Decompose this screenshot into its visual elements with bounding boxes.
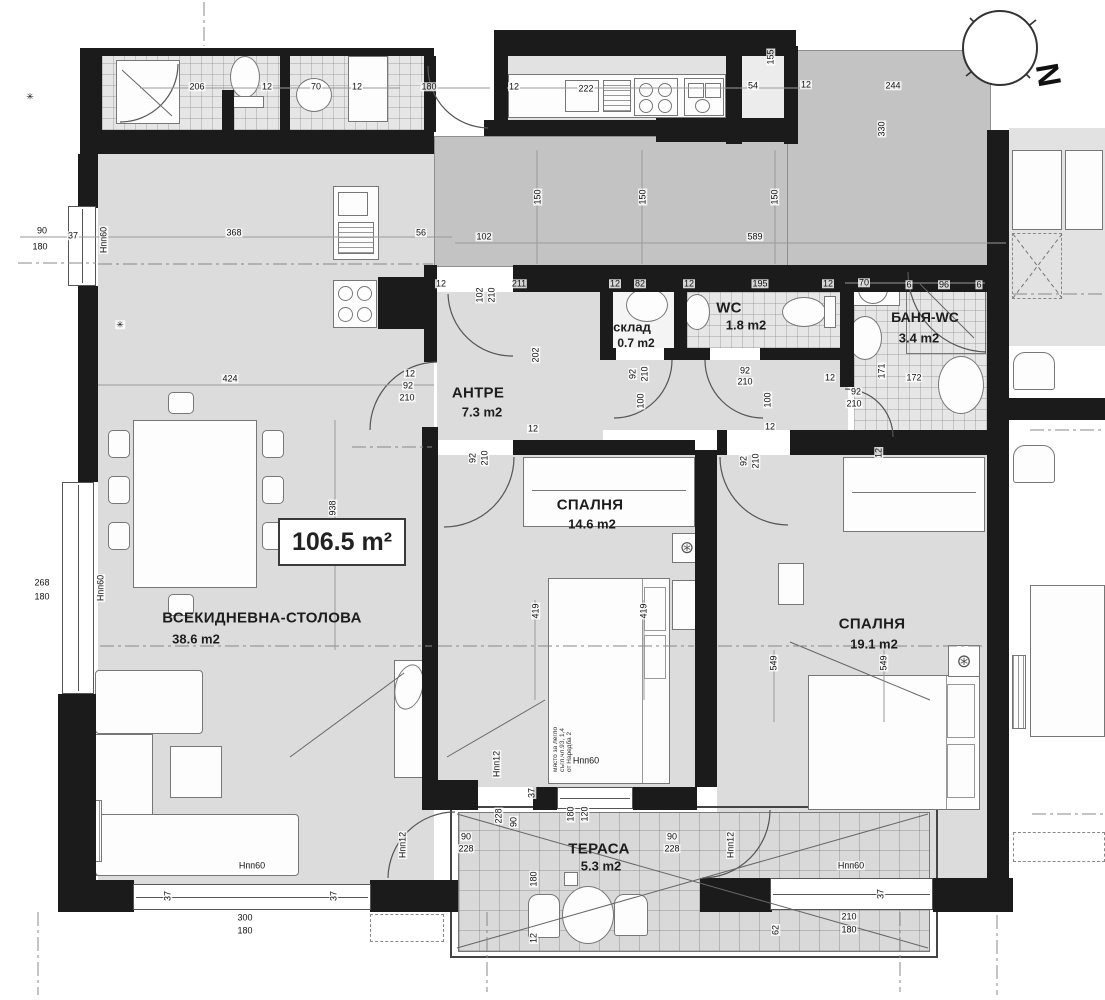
wall	[78, 154, 98, 208]
washbasin	[296, 78, 332, 112]
wall	[987, 130, 1009, 882]
kitchen-stove	[634, 78, 678, 116]
wall	[656, 118, 798, 142]
room-name-bedroom1: СПАЛНЯ	[557, 497, 624, 514]
north-letter: N	[1028, 60, 1068, 89]
sofa-seat	[95, 814, 299, 876]
terrace-door	[557, 787, 633, 809]
dining-table	[133, 420, 257, 588]
kitchenette-sink	[338, 192, 368, 216]
room-area-sklad: 0.7 m2	[617, 336, 654, 350]
shower-tray	[116, 60, 180, 124]
dim-label: 180	[31, 242, 48, 251]
dining-chair	[168, 392, 194, 414]
terrace-planter	[564, 872, 578, 886]
wall	[80, 48, 434, 56]
room-name-antre: АНТРЕ	[452, 385, 504, 402]
wc-sink	[684, 294, 710, 330]
wall	[700, 878, 772, 912]
wall	[58, 694, 96, 884]
terrace-table	[562, 886, 614, 944]
coffee-table	[170, 746, 222, 798]
niche-floor	[742, 56, 784, 118]
wc-toilet-tank	[824, 296, 836, 328]
wall	[717, 430, 727, 455]
dining-chair	[262, 430, 284, 458]
bed-note-line: съгл.чл.93, 1,4	[559, 572, 566, 772]
sofa-chaise	[95, 670, 203, 734]
room-area-antre: 7.3 m2	[462, 405, 502, 420]
kitchenette-stove	[333, 280, 377, 328]
wall	[494, 52, 508, 124]
planter-box	[370, 914, 444, 942]
kitchenette-drainer	[338, 222, 374, 254]
window	[62, 482, 94, 694]
room-name-sklad: склад	[613, 320, 651, 335]
wall	[58, 880, 134, 912]
wall	[695, 450, 717, 787]
room-area-wc: 1.8 m2	[726, 318, 766, 333]
bed-note-line: от Наредба 2	[566, 572, 573, 772]
neighbor-cabinet	[1065, 150, 1103, 230]
wall	[78, 286, 98, 482]
room-name-wc: WC	[716, 300, 742, 317]
window	[770, 878, 933, 910]
room-name-banya: БАНЯ-WC	[891, 309, 959, 325]
window	[68, 206, 96, 286]
dim-label: 180	[236, 926, 253, 935]
terrace-chair	[528, 894, 560, 938]
wall	[422, 780, 478, 810]
dim-label: 180	[33, 592, 50, 601]
nightstand	[778, 563, 804, 605]
neighbor-cabinet	[1012, 150, 1062, 230]
wall	[424, 56, 436, 132]
bathroom-cabinet	[348, 56, 388, 122]
wall	[933, 878, 1013, 912]
wardrobe	[843, 457, 985, 532]
dim-label: 300	[236, 913, 253, 922]
bath-sink	[938, 356, 984, 414]
window	[133, 884, 371, 910]
wall	[484, 120, 658, 136]
room-area-bedroom2: 19.1 m2	[850, 637, 898, 652]
wall	[760, 348, 844, 360]
wall	[790, 430, 987, 455]
neighbor-chair	[1013, 445, 1055, 483]
wall	[633, 787, 697, 810]
dim-label: 268	[33, 578, 50, 587]
neighbor-shaft	[1012, 233, 1062, 299]
compass-icon	[962, 10, 1038, 86]
room-area-bedroom1: 14.6 m2	[568, 517, 616, 532]
neighbor-chair	[1013, 352, 1055, 390]
wall	[513, 440, 695, 455]
bed	[808, 675, 980, 810]
planter-box	[1013, 832, 1105, 862]
wall	[600, 348, 616, 360]
boiler	[626, 288, 668, 322]
hallway-floor	[603, 360, 848, 430]
room-name-terrace: ТЕРАСА	[568, 841, 629, 858]
wall	[533, 787, 557, 810]
room-area-living: 38.6 m2	[172, 632, 220, 647]
wall	[80, 48, 102, 132]
room-area-terrace: 5.3 m2	[581, 859, 621, 874]
floor-plan: ⊛ ⊛	[0, 0, 1105, 1000]
wc-toilet	[782, 297, 826, 327]
wall	[840, 265, 854, 387]
dining-chair	[262, 476, 284, 504]
radiator	[1012, 655, 1026, 729]
wall	[222, 90, 234, 132]
terrace-chair	[614, 894, 648, 936]
wall	[674, 292, 687, 350]
wall	[378, 277, 426, 329]
dining-chair	[108, 430, 130, 458]
wall	[370, 880, 458, 912]
corridor-floor	[434, 136, 789, 267]
bed-note-line: място за легло	[552, 572, 559, 772]
wall	[664, 348, 710, 360]
total-area-box: 106.5 m²	[278, 518, 406, 566]
room-name-living: ВСЕКИДНЕВНА-СТОЛОВА	[162, 610, 361, 627]
dim-label: 90	[36, 226, 48, 235]
wall	[1009, 398, 1105, 420]
floor-drain-symbol: ⊛	[948, 645, 980, 677]
wall	[600, 292, 613, 350]
wall	[80, 130, 434, 154]
dining-chair	[108, 476, 130, 504]
wall	[513, 265, 987, 292]
room-name-bedroom2: СПАЛНЯ	[839, 616, 906, 633]
vent-symbol: ✳	[25, 92, 35, 101]
toilet	[230, 56, 260, 98]
kitchen-sink	[565, 80, 599, 112]
wall	[280, 52, 290, 130]
wall	[494, 30, 796, 56]
kitchen-module	[684, 78, 724, 116]
kitchen-drainer	[603, 80, 631, 112]
bed-regulation-note: място за леглосъгл.чл.93, 1,4от Наредба …	[552, 572, 573, 772]
neighbor-wardrobe	[1030, 585, 1105, 737]
room-area-banya: 3.4 m2	[899, 331, 939, 346]
wall	[422, 427, 438, 787]
dining-chair	[108, 522, 130, 550]
